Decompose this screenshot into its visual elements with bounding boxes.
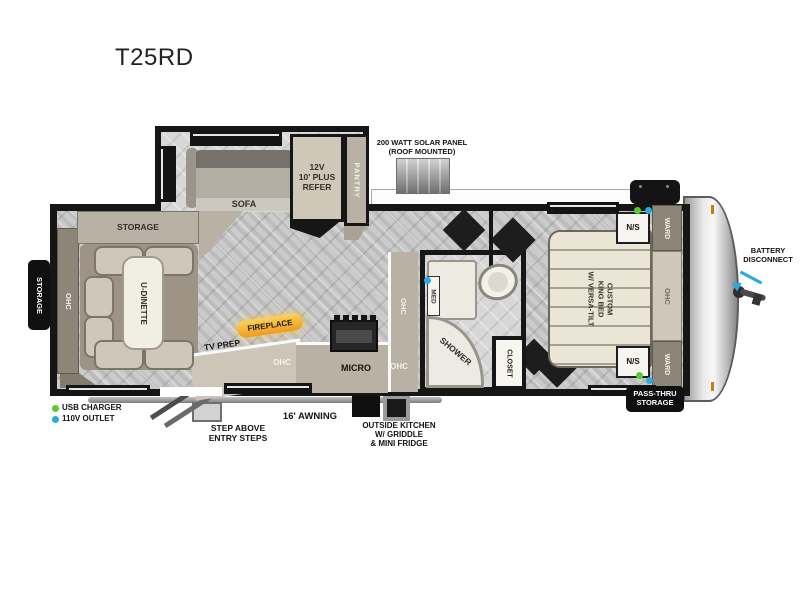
stove-knob-icon	[334, 315, 340, 322]
usb-charger-dot	[52, 405, 59, 412]
bedroom-window	[547, 202, 619, 214]
toilet-bowl	[488, 272, 508, 292]
usb-charger-label: USB CHARGER	[62, 403, 122, 412]
roof-box	[630, 180, 680, 204]
wardrobe-top: WARD	[652, 205, 682, 251]
refrigerator: 12V 10' PLUS REFER	[290, 134, 344, 222]
outlet-110v-label: 110V OUTLET	[62, 414, 114, 423]
pass-thru-storage-tag: PASS-THRU STORAGE	[626, 386, 684, 412]
rear-ohc-cabinet: OHC	[57, 228, 79, 374]
usb-charger-dot	[634, 207, 641, 214]
solar-panel-icon	[396, 158, 450, 194]
stove-knob-icon	[370, 315, 376, 322]
outlet-110v-dot	[645, 207, 652, 214]
wardrobe-bottom: WARD	[652, 341, 682, 387]
roof-box-screw-icon	[639, 185, 642, 188]
stove-panel	[336, 330, 372, 343]
marker-light-icon	[711, 205, 714, 214]
closet: CLOSET	[492, 336, 526, 390]
micro-ohc-label: OHC	[384, 361, 414, 373]
dinette-storage: STORAGE	[77, 211, 199, 244]
battery-disconnect-label: BATTERY DISCONNECT	[738, 247, 798, 264]
outside-kitchen-fridge	[383, 395, 410, 421]
roof-box-screw-icon	[666, 185, 669, 188]
dinette-table: U-DINETTE	[122, 256, 164, 350]
hitch-jack-icon	[752, 293, 763, 306]
tvprep-ohc-label: OHC	[264, 357, 300, 369]
slide-window	[190, 131, 282, 146]
solar-panel-label: 200 WATT SOLAR PANEL (ROOF MOUNTED)	[352, 139, 492, 156]
galley-ohc-label: OHC	[390, 280, 416, 332]
outlet-110v-dot	[424, 277, 431, 284]
marker-light-icon	[711, 382, 714, 391]
outside-kitchen-label: OUTSIDE KITCHEN W/ GRIDDLE & MINI FRIDGE	[338, 421, 460, 449]
king-bed-label: CUSTOM KING BED W/ VERSA-TILT	[586, 272, 614, 327]
nightstand-top: N/S	[616, 212, 650, 244]
floorplan-title: T25RD	[115, 44, 194, 72]
exterior-storage-tag: STORAGE	[28, 260, 50, 330]
slide-side-window	[158, 146, 176, 202]
dinette-window	[66, 385, 150, 396]
stove-knob-icon	[352, 315, 358, 322]
nightstand-bottom: N/S	[616, 346, 650, 378]
dinette-cushion	[84, 276, 114, 318]
outside-kitchen-hatch	[352, 393, 380, 417]
stove-knob-icon	[343, 315, 349, 322]
sofa-label: SOFA	[196, 198, 292, 211]
front-cap	[683, 196, 739, 402]
usb-charger-dot	[636, 372, 643, 379]
sofa-seat	[196, 168, 292, 200]
outlet-110v-label-dot	[52, 416, 59, 423]
outlet-110v-dot	[646, 377, 653, 384]
entry-steps-label: STEP ABOVE ENTRY STEPS	[175, 424, 301, 444]
stove-knob-icon	[361, 315, 367, 322]
bed-ohc: OHC	[652, 251, 682, 341]
battery-arrow-line	[740, 271, 763, 285]
sofa-back	[196, 150, 292, 170]
micro-label: MICRO	[334, 362, 378, 375]
entry-door-opening	[160, 387, 222, 396]
pantry: PANTRY	[344, 134, 369, 226]
floorplan-canvas: T25RD BATTERY DISCONNECT SOFA 12V 10' PL…	[0, 0, 800, 600]
kitchen-window	[224, 383, 312, 394]
